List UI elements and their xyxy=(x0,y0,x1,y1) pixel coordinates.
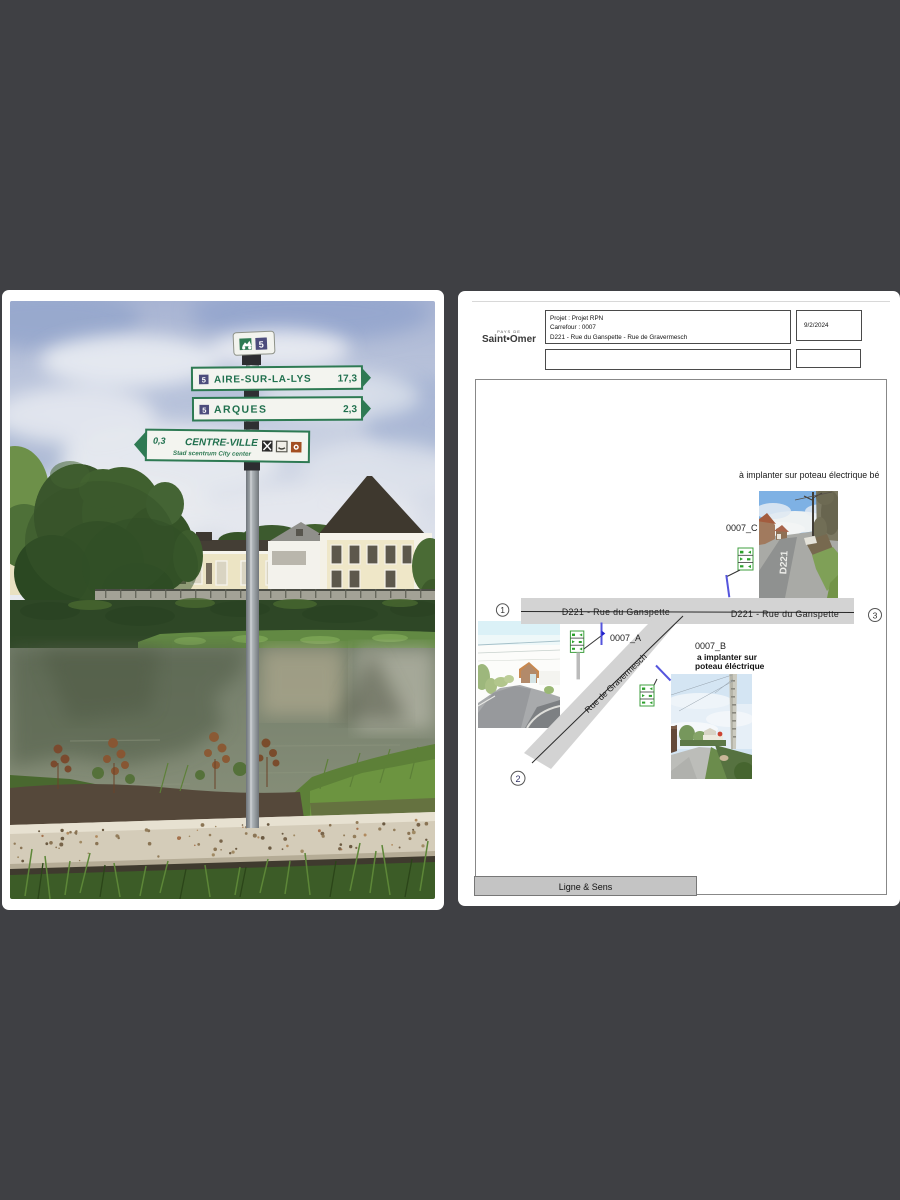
svg-text:D221 - Rue du Ganspette: D221 - Rue du Ganspette xyxy=(562,607,670,617)
svg-text:2,3: 2,3 xyxy=(343,404,357,415)
svg-text:0,3: 0,3 xyxy=(153,436,166,446)
svg-text:Stad scentrum City center: Stad scentrum City center xyxy=(173,450,252,458)
svg-text:2: 2 xyxy=(515,774,520,784)
svg-text:à implanter sur poteau électri: à implanter sur poteau électrique bé xyxy=(739,470,879,480)
svg-text:AIRE-SUR-LA-LYS: AIRE-SUR-LA-LYS xyxy=(214,374,311,386)
svg-text:0007_C: 0007_C xyxy=(726,523,758,533)
svg-text:0007_B: 0007_B xyxy=(695,641,726,651)
svg-text:5: 5 xyxy=(202,375,206,384)
svg-text:D221 - Rue du Ganspette: D221 - Rue du Ganspette xyxy=(731,609,839,619)
svg-text:0007_A: 0007_A xyxy=(610,633,641,643)
svg-text:17,3: 17,3 xyxy=(337,373,357,384)
svg-text:poteau éléctrique: poteau éléctrique xyxy=(695,661,765,671)
svg-text:5: 5 xyxy=(259,339,264,349)
svg-text:D221: D221 xyxy=(778,550,790,575)
svg-text:3: 3 xyxy=(873,610,878,620)
svg-text:CENTRE-VILLE: CENTRE-VILLE xyxy=(185,437,258,449)
svg-text:5: 5 xyxy=(202,406,206,415)
svg-text:ARQUES: ARQUES xyxy=(214,404,267,416)
svg-text:1: 1 xyxy=(500,605,505,615)
